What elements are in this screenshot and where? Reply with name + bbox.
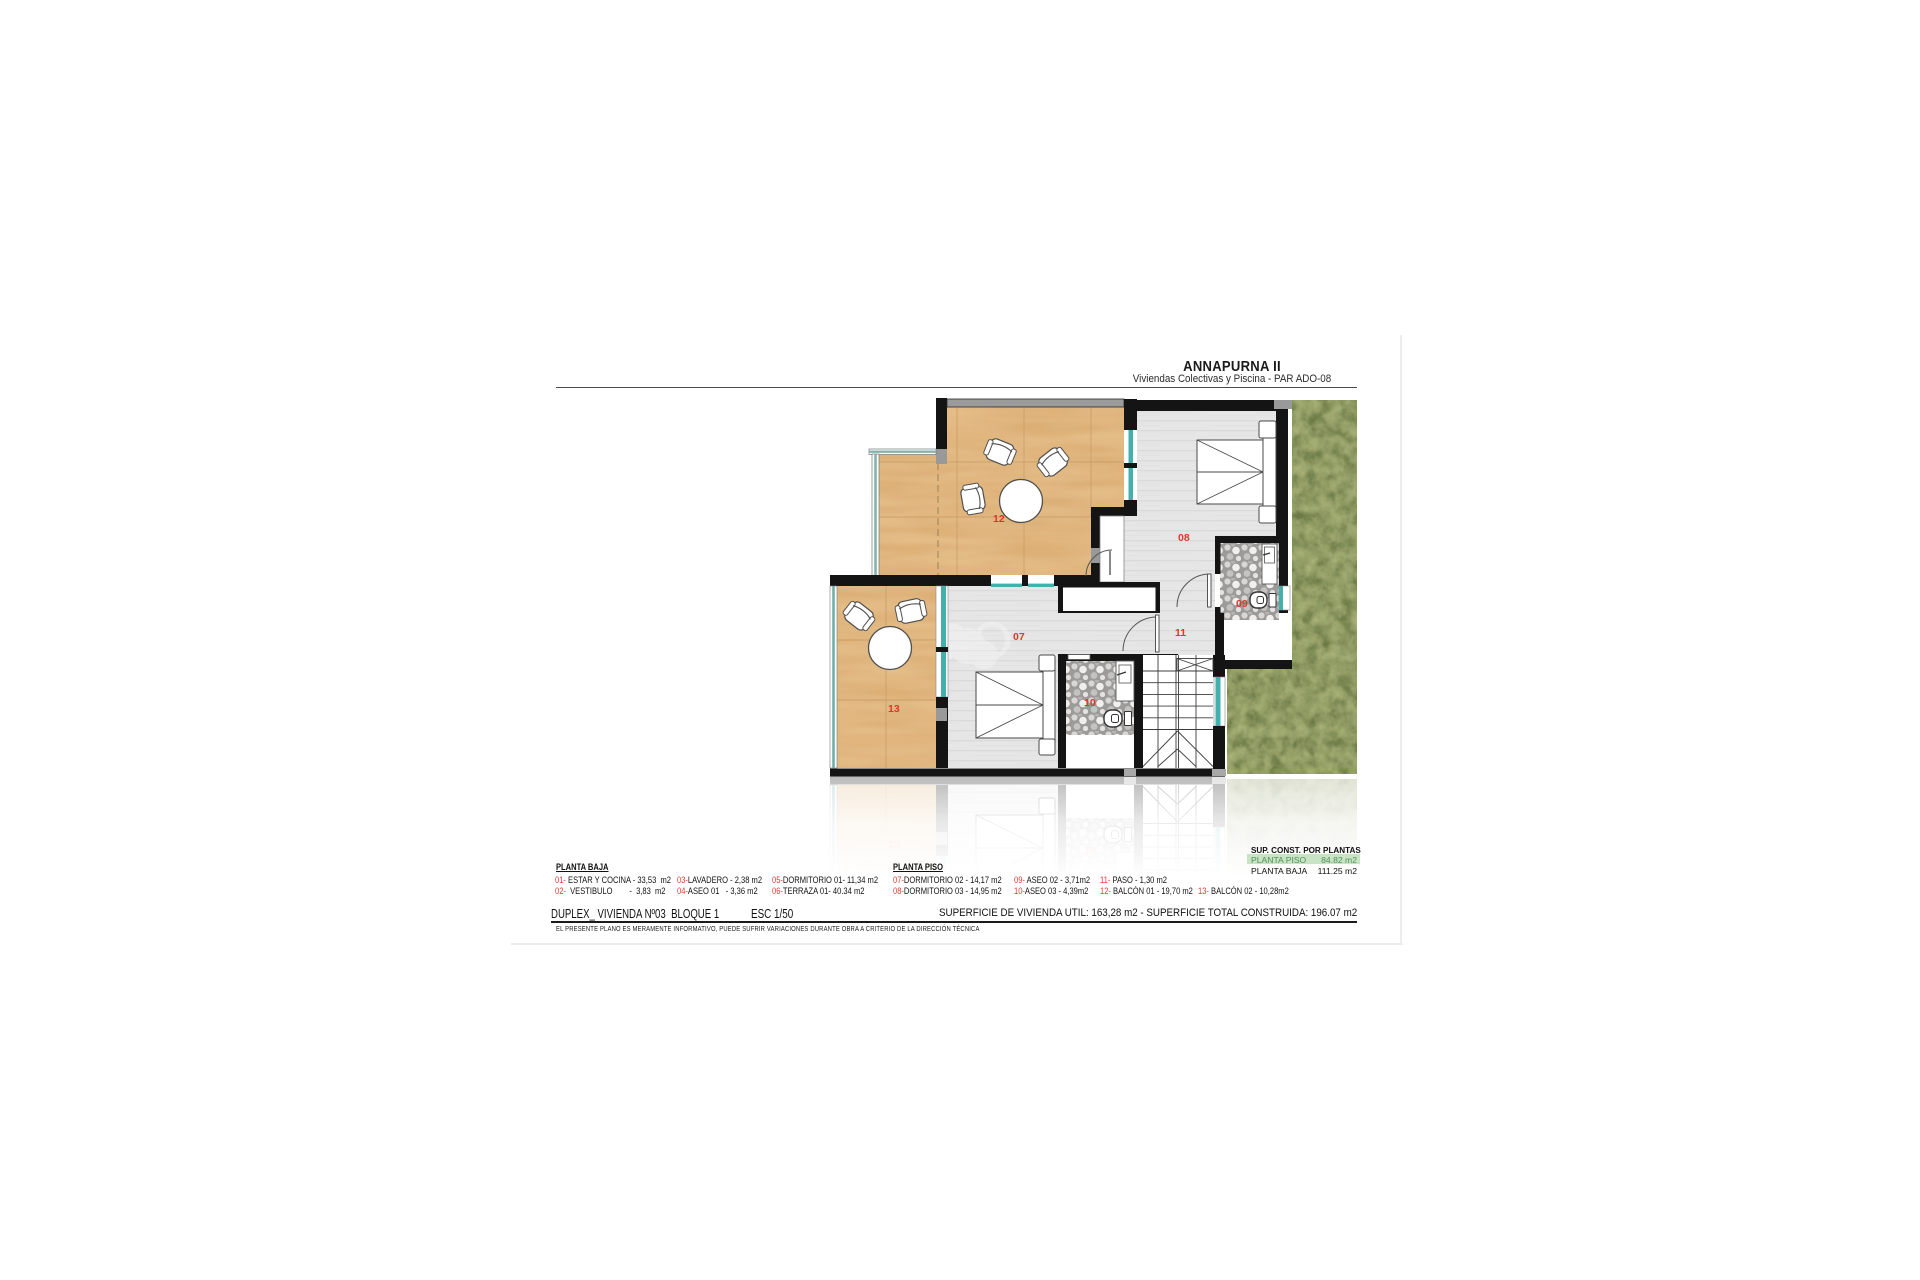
svg-text:11: 11 xyxy=(1175,627,1186,639)
svg-text:09: 09 xyxy=(1236,598,1248,610)
svg-text:13: 13 xyxy=(888,703,900,715)
svg-text:12: 12 xyxy=(993,513,1005,525)
svg-text:07: 07 xyxy=(1013,631,1025,643)
svg-text:08: 08 xyxy=(1178,532,1190,544)
svg-text:10: 10 xyxy=(1084,697,1096,709)
